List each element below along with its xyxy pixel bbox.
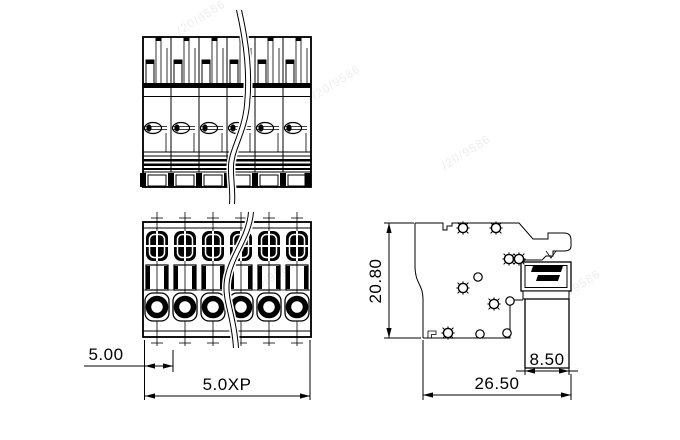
rivet-icon [506,297,514,305]
foot-hook [428,331,436,338]
label-logo-mark [536,275,560,281]
label-logo-mark [531,266,563,272]
label-base [523,291,569,299]
rivet-icon [456,221,469,234]
dimension-total-depth-text: 26.50 [474,374,519,393]
front-view [140,10,311,204]
dimension-body-height: 20.80 [366,223,421,338]
dimension-pitch-text: 5.00 [88,345,123,364]
dimension-pitch: 5.00 [84,340,173,400]
rivet-icon [476,330,484,338]
terminal-position [145,212,169,346]
technical-drawing-canvas: /20/9586 /20/9586 /20/9586 /20/9586 /20/… [0,0,680,440]
drawing-sheet: /20/9586 /20/9586 /20/9586 /20/9586 /20/… [0,0,680,440]
rivet-icon [489,221,502,234]
rivet-icon [456,281,469,294]
terminal-position [173,212,197,346]
watermark-text: /20/9586 [309,62,363,103]
rivet-icon [474,273,482,281]
dimension-foot-depth-text: 8.50 [529,350,564,369]
rivet-icon [441,326,454,339]
dimension-body-height-text: 20.80 [366,258,385,303]
terminal-position [285,212,309,346]
housing-band [143,83,311,88]
watermark-text: /20/9586 [439,132,493,173]
latch-barb [546,251,556,258]
watermark-text: /20/9586 [174,0,228,38]
rivet-icon [503,329,511,337]
top-view [143,212,311,348]
rivet-icon [487,297,500,310]
side-view [415,221,571,368]
rivet-icon [512,252,525,265]
terminal-position [257,212,281,346]
terminal-position [201,212,225,346]
marking-label [521,262,571,291]
dimension-total-width: 5.0XP [145,340,311,400]
dimension-total-width-text: 5.0XP [203,375,252,394]
